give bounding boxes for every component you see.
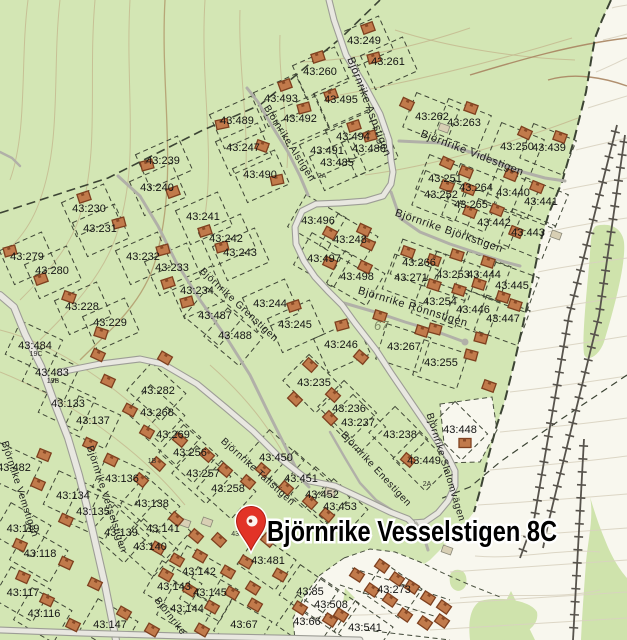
svg-text:43:262: 43:262	[415, 111, 449, 123]
svg-text:43:266: 43:266	[402, 257, 436, 269]
svg-text:43:147: 43:147	[93, 619, 127, 631]
svg-text:43:445: 43:445	[495, 280, 529, 292]
svg-text:43:439: 43:439	[532, 142, 566, 154]
svg-text:43:498: 43:498	[340, 271, 374, 283]
svg-text:43:252: 43:252	[424, 189, 458, 201]
svg-text:43:245: 43:245	[278, 319, 312, 331]
svg-text:43:143: 43:143	[157, 581, 191, 593]
svg-text:43:447: 43:447	[486, 313, 520, 325]
svg-text:43:142: 43:142	[182, 566, 216, 578]
svg-text:43:118: 43:118	[24, 548, 57, 560]
svg-text:43:117: 43:117	[7, 587, 40, 599]
svg-text:43:265: 43:265	[454, 199, 488, 211]
svg-text:43:508: 43:508	[314, 599, 348, 611]
svg-text:43:239: 43:239	[146, 155, 180, 167]
svg-text:43:228: 43:228	[65, 301, 99, 313]
svg-text:43:85: 43:85	[296, 586, 324, 598]
svg-text:43:230: 43:230	[72, 203, 106, 215]
svg-text:43:273: 43:273	[377, 584, 411, 596]
svg-text:19B: 19B	[47, 378, 60, 385]
svg-text:43:269: 43:269	[156, 429, 190, 441]
svg-text:43:494: 43:494	[336, 131, 370, 143]
svg-text:43:481: 43:481	[251, 555, 285, 567]
svg-text:43:116: 43:116	[28, 608, 61, 620]
svg-text:43:280: 43:280	[35, 265, 69, 277]
svg-text:43:253: 43:253	[436, 269, 470, 281]
svg-text:43:441: 43:441	[524, 196, 558, 208]
svg-text:43:268: 43:268	[140, 407, 174, 419]
svg-text:43:141: 43:141	[146, 523, 180, 535]
svg-text:43:443: 43:443	[511, 227, 545, 239]
svg-text:43:442: 43:442	[477, 217, 511, 229]
svg-text:43:446: 43:446	[456, 304, 490, 316]
svg-text:2A: 2A	[318, 173, 327, 180]
svg-text:43:229: 43:229	[93, 317, 127, 329]
svg-text:43:255: 43:255	[424, 357, 458, 369]
svg-text:43:271: 43:271	[394, 272, 428, 284]
svg-text:43:279: 43:279	[10, 251, 44, 263]
svg-text:43:133: 43:133	[51, 398, 85, 410]
svg-text:43:453: 43:453	[323, 501, 357, 513]
svg-text:43:485: 43:485	[320, 157, 354, 169]
svg-text:Björnrike Vesselstigen 8C: Björnrike Vesselstigen 8C	[267, 516, 557, 548]
svg-text:43:136: 43:136	[105, 473, 139, 485]
svg-text:43:235: 43:235	[297, 377, 331, 389]
svg-text:43:541: 43:541	[348, 622, 382, 634]
svg-text:43:236: 43:236	[332, 403, 366, 415]
svg-text:43:145: 43:145	[193, 587, 227, 599]
svg-text:43:67: 43:67	[230, 619, 258, 631]
svg-text:43:66: 43:66	[293, 616, 321, 628]
svg-text:43:448: 43:448	[443, 424, 477, 436]
svg-text:43:260: 43:260	[303, 66, 337, 78]
svg-text:43:231: 43:231	[83, 223, 117, 235]
svg-text:67: 67	[374, 318, 389, 333]
svg-text:2A: 2A	[423, 481, 432, 488]
svg-text:43:261: 43:261	[371, 56, 405, 68]
svg-text:43:497: 43:497	[307, 253, 341, 265]
svg-text:43:492: 43:492	[283, 113, 317, 125]
svg-text:43:450: 43:450	[259, 452, 293, 464]
svg-text:43:264: 43:264	[459, 182, 493, 194]
svg-text:1B: 1B	[148, 458, 157, 465]
svg-text:43:256: 43:256	[173, 447, 207, 459]
svg-text:43:488: 43:488	[218, 330, 252, 342]
svg-text:43:237: 43:237	[341, 417, 375, 429]
svg-text:43:451: 43:451	[284, 473, 318, 485]
svg-text:43:267: 43:267	[387, 341, 421, 353]
svg-text:43:134: 43:134	[56, 490, 90, 502]
svg-text:43:249: 43:249	[347, 35, 381, 47]
svg-text:43:246: 43:246	[324, 339, 358, 351]
svg-text:43:238: 43:238	[383, 429, 417, 441]
svg-text:43:243: 43:243	[223, 247, 257, 259]
svg-text:43:140: 43:140	[133, 541, 167, 553]
svg-text:43:449: 43:449	[407, 455, 441, 467]
svg-text:43:263: 43:263	[447, 117, 481, 129]
svg-text:43:282: 43:282	[141, 385, 175, 397]
svg-text:43:242: 43:242	[209, 233, 243, 245]
svg-text:43:491: 43:491	[310, 145, 344, 157]
svg-text:43:240: 43:240	[140, 182, 174, 194]
svg-text:43:247: 43:247	[226, 142, 260, 154]
svg-text:43:244: 43:244	[253, 298, 287, 310]
svg-text:43:487: 43:487	[198, 310, 232, 322]
svg-text:43:138: 43:138	[135, 498, 169, 510]
svg-text:43:257: 43:257	[186, 468, 220, 480]
svg-text:43:137: 43:137	[76, 415, 110, 427]
svg-text:43:241: 43:241	[186, 211, 220, 223]
svg-text:43:233: 43:233	[155, 262, 189, 274]
svg-text:43:489: 43:489	[220, 115, 254, 127]
svg-text:43:234: 43:234	[180, 285, 214, 297]
svg-text:43:250: 43:250	[500, 141, 534, 153]
svg-text:43:251: 43:251	[428, 173, 462, 185]
svg-text:43:490: 43:490	[243, 169, 277, 181]
svg-text:43:496: 43:496	[301, 215, 335, 227]
svg-text:43:495: 43:495	[324, 94, 358, 106]
svg-text:19C: 19C	[30, 351, 43, 358]
svg-text:43:248: 43:248	[333, 234, 367, 246]
svg-text:43:258: 43:258	[211, 483, 245, 495]
svg-text:43:452: 43:452	[305, 489, 339, 501]
